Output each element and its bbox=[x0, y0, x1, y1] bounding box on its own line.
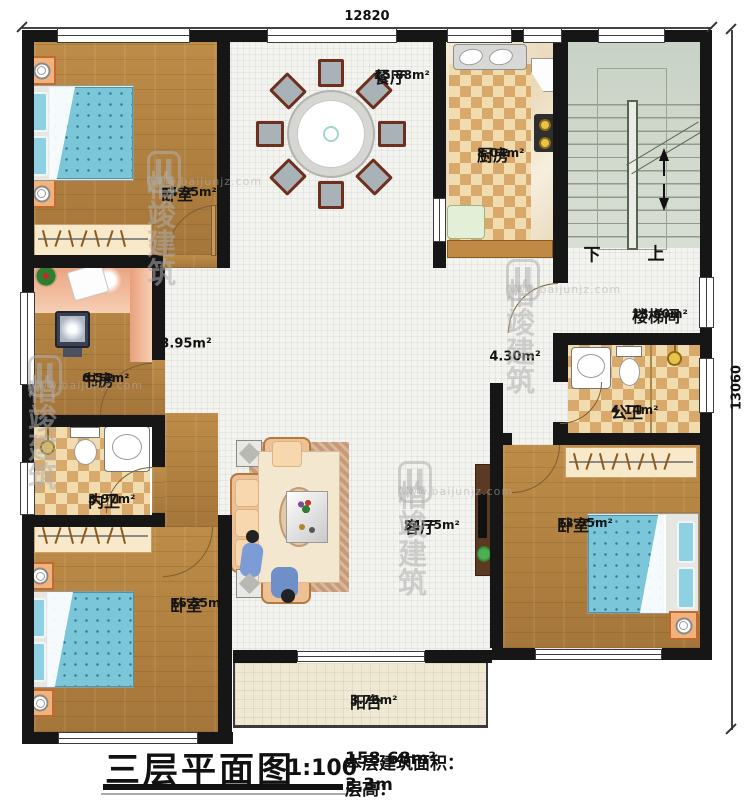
wall-segment bbox=[22, 30, 34, 292]
fridge-icon bbox=[447, 205, 485, 239]
window bbox=[447, 28, 512, 43]
window bbox=[699, 277, 714, 328]
lamp-icon bbox=[33, 185, 50, 202]
person-head bbox=[246, 530, 259, 543]
wall-segment bbox=[553, 42, 568, 283]
flower-vase bbox=[295, 498, 315, 514]
toilet-icon bbox=[74, 439, 97, 465]
room-area: 13.60m² bbox=[632, 308, 688, 321]
threshold-study bbox=[152, 360, 165, 415]
dining-chair bbox=[256, 121, 284, 147]
window bbox=[699, 358, 714, 413]
room-area: 3.76m² bbox=[350, 694, 397, 707]
person-head bbox=[281, 589, 295, 603]
wall-segment bbox=[562, 433, 712, 445]
room-area: 16.55m² bbox=[170, 597, 226, 610]
kitchen-counter bbox=[447, 240, 553, 258]
toilet-tank bbox=[616, 346, 642, 357]
room-area: 13.95m² bbox=[557, 517, 613, 530]
wall-segment bbox=[218, 515, 232, 744]
wall-segment bbox=[233, 650, 297, 663]
dimension-line-top bbox=[22, 27, 712, 29]
title-underline-thin bbox=[101, 793, 347, 795]
shower-divider bbox=[650, 345, 652, 433]
window bbox=[598, 28, 665, 43]
watermark-brand: 柏竣建筑 bbox=[28, 376, 62, 492]
room-area: 3.97m² bbox=[88, 493, 135, 506]
door-leaf-bedroom-nw bbox=[211, 205, 216, 256]
floor-plan: 卧室14.95m² 餐厅15.88m² 厨房8.04m² 楼梯间13.60m² … bbox=[0, 0, 750, 812]
window bbox=[57, 28, 190, 43]
wall-segment bbox=[22, 732, 58, 744]
room-area: 8.04m² bbox=[477, 147, 524, 160]
watermark-url: www.baijunjz.com bbox=[398, 485, 513, 498]
stair-down-arrow-stem bbox=[663, 184, 665, 199]
wall-segment bbox=[700, 413, 712, 660]
wall-segment bbox=[492, 648, 535, 660]
watermark-url: www.baijunjz.com bbox=[28, 379, 143, 392]
wall-segment bbox=[562, 30, 598, 42]
dining-chair bbox=[378, 121, 406, 147]
dining-chair bbox=[318, 181, 344, 209]
stair-down-label: 下 bbox=[584, 241, 601, 266]
stair-up-arrow-stem bbox=[663, 160, 665, 176]
room-area: 4.14m² bbox=[611, 404, 658, 417]
stair-up-label: 上 bbox=[648, 240, 665, 265]
wall-segment bbox=[553, 333, 712, 345]
hall-area-label: 3.95m² bbox=[160, 337, 211, 352]
wall-segment bbox=[397, 30, 447, 42]
wall-segment bbox=[217, 42, 230, 268]
dining-table-center bbox=[323, 126, 339, 142]
window bbox=[523, 28, 562, 43]
wall-segment bbox=[553, 345, 568, 382]
window bbox=[267, 28, 397, 43]
wall-segment bbox=[700, 30, 712, 277]
stove-burner bbox=[539, 119, 551, 131]
watermark-url: www.baijunjz.com bbox=[506, 283, 621, 296]
computer-screen bbox=[60, 316, 85, 342]
stair-up-arrow-icon bbox=[659, 148, 669, 161]
plant-icon bbox=[477, 546, 491, 562]
watermark-brand: 柏竣建筑 bbox=[506, 280, 540, 396]
closet-rod bbox=[38, 238, 148, 240]
wall-segment bbox=[152, 427, 165, 467]
wall-segment bbox=[433, 240, 446, 268]
sliding-door-kitchen bbox=[433, 198, 446, 242]
table-item bbox=[309, 527, 315, 533]
lamp-icon bbox=[33, 62, 50, 79]
window bbox=[297, 651, 425, 662]
sink-icon bbox=[112, 434, 142, 460]
toilet-tank bbox=[70, 427, 100, 438]
floor-corridor bbox=[165, 413, 218, 527]
wall-segment bbox=[662, 648, 712, 660]
stair-down-arrow-icon bbox=[659, 198, 669, 211]
sofa-cushion bbox=[235, 479, 259, 507]
floor-area-value: 158.68m² bbox=[345, 749, 436, 769]
armchair-cushion bbox=[272, 441, 302, 467]
pillow bbox=[677, 567, 695, 609]
closet-se bbox=[565, 447, 697, 478]
room-area: 15.88m² bbox=[374, 69, 430, 82]
watermark-brand: 柏竣建筑 bbox=[398, 482, 432, 598]
tv-icon bbox=[478, 494, 487, 538]
computer-stand bbox=[63, 348, 82, 357]
window bbox=[535, 649, 662, 660]
lamp-icon bbox=[32, 568, 49, 585]
wall-segment bbox=[22, 515, 163, 527]
closet-rod bbox=[38, 535, 148, 537]
floor-height-value: 3.3m bbox=[345, 775, 393, 795]
lamp-icon bbox=[675, 617, 692, 634]
lamp-icon bbox=[32, 695, 49, 712]
toilet-icon bbox=[619, 358, 640, 386]
stove-burner bbox=[539, 137, 551, 149]
dining-chair bbox=[318, 59, 344, 87]
stair-railing bbox=[627, 100, 638, 250]
watermark-brand: 柏竣建筑 bbox=[147, 172, 181, 288]
wall-segment bbox=[490, 383, 503, 648]
plant-icon bbox=[35, 265, 57, 287]
dimension-top-value: 12820 bbox=[330, 9, 404, 24]
nightstand bbox=[669, 611, 698, 640]
title-underline-thick bbox=[103, 784, 343, 790]
sink-icon bbox=[577, 354, 605, 378]
wall-segment bbox=[190, 30, 267, 42]
dimension-right-value: 13060 bbox=[730, 358, 745, 418]
table-item bbox=[299, 524, 305, 530]
wall-segment bbox=[433, 42, 446, 200]
pillow bbox=[677, 521, 695, 563]
wall-segment bbox=[152, 415, 165, 427]
threshold-bath-private bbox=[152, 467, 165, 513]
wall-segment bbox=[425, 650, 492, 663]
wall-segment bbox=[512, 30, 523, 42]
wall-segment bbox=[22, 515, 34, 744]
wall-segment bbox=[34, 255, 163, 268]
closet-nw bbox=[34, 224, 152, 256]
watermark-url: www.baijunjz.com bbox=[147, 175, 262, 188]
shower-head-icon bbox=[667, 351, 682, 366]
